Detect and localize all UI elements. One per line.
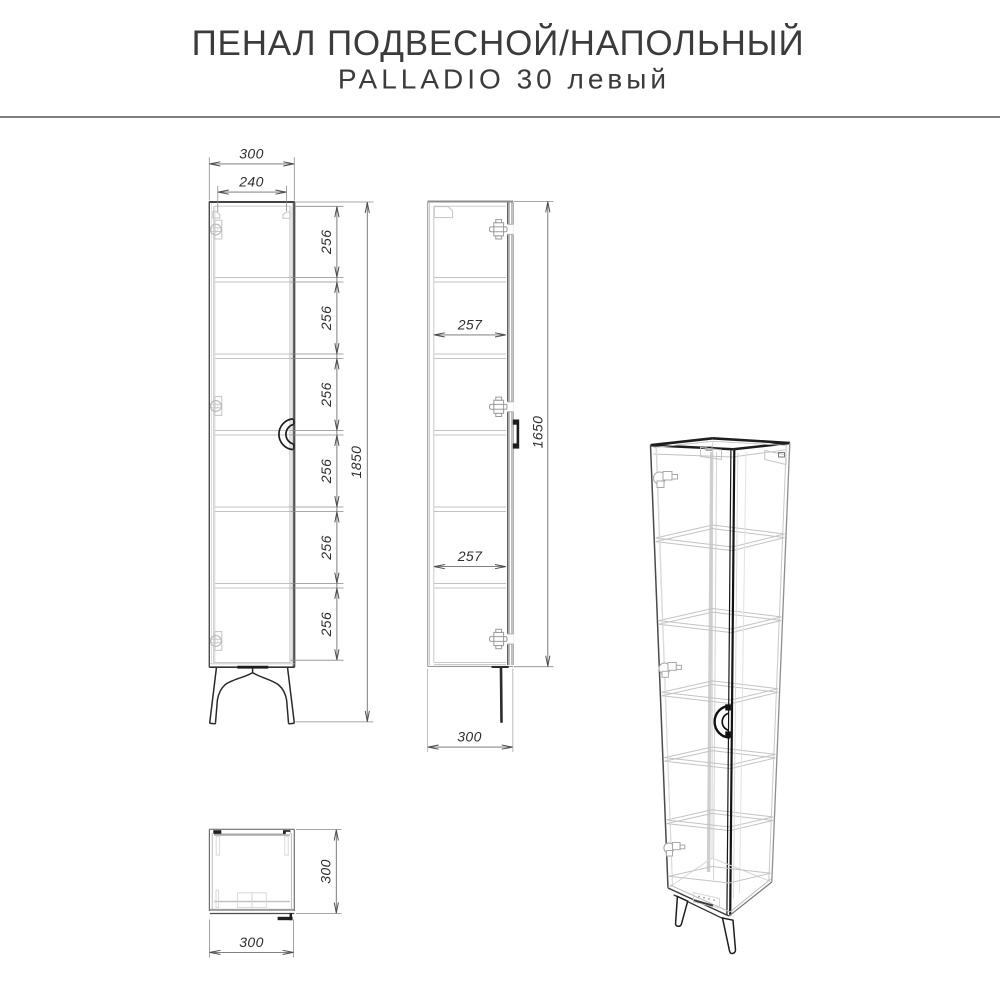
- svg-text:300: 300: [239, 934, 264, 950]
- svg-text:ПЕНАЛ ПОДВЕСНОЙ/НАПОЛЬНЫЙ: ПЕНАЛ ПОДВЕСНОЙ/НАПОЛЬНЫЙ: [192, 23, 805, 63]
- svg-text:300: 300: [318, 859, 334, 884]
- svg-text:PALLADIO 30 левый: PALLADIO 30 левый: [338, 64, 670, 95]
- svg-text:1650: 1650: [530, 416, 546, 449]
- svg-text:256: 256: [318, 382, 334, 408]
- svg-text:257: 257: [457, 548, 483, 564]
- svg-text:257: 257: [457, 316, 483, 332]
- svg-text:256: 256: [318, 230, 334, 256]
- svg-text:1850: 1850: [348, 446, 364, 479]
- svg-text:256: 256: [318, 459, 334, 485]
- svg-text:300: 300: [239, 145, 264, 161]
- svg-text:240: 240: [238, 174, 264, 190]
- svg-text:256: 256: [318, 306, 334, 332]
- svg-text:256: 256: [318, 612, 334, 638]
- svg-text:256: 256: [318, 535, 334, 561]
- svg-text:300: 300: [457, 729, 482, 745]
